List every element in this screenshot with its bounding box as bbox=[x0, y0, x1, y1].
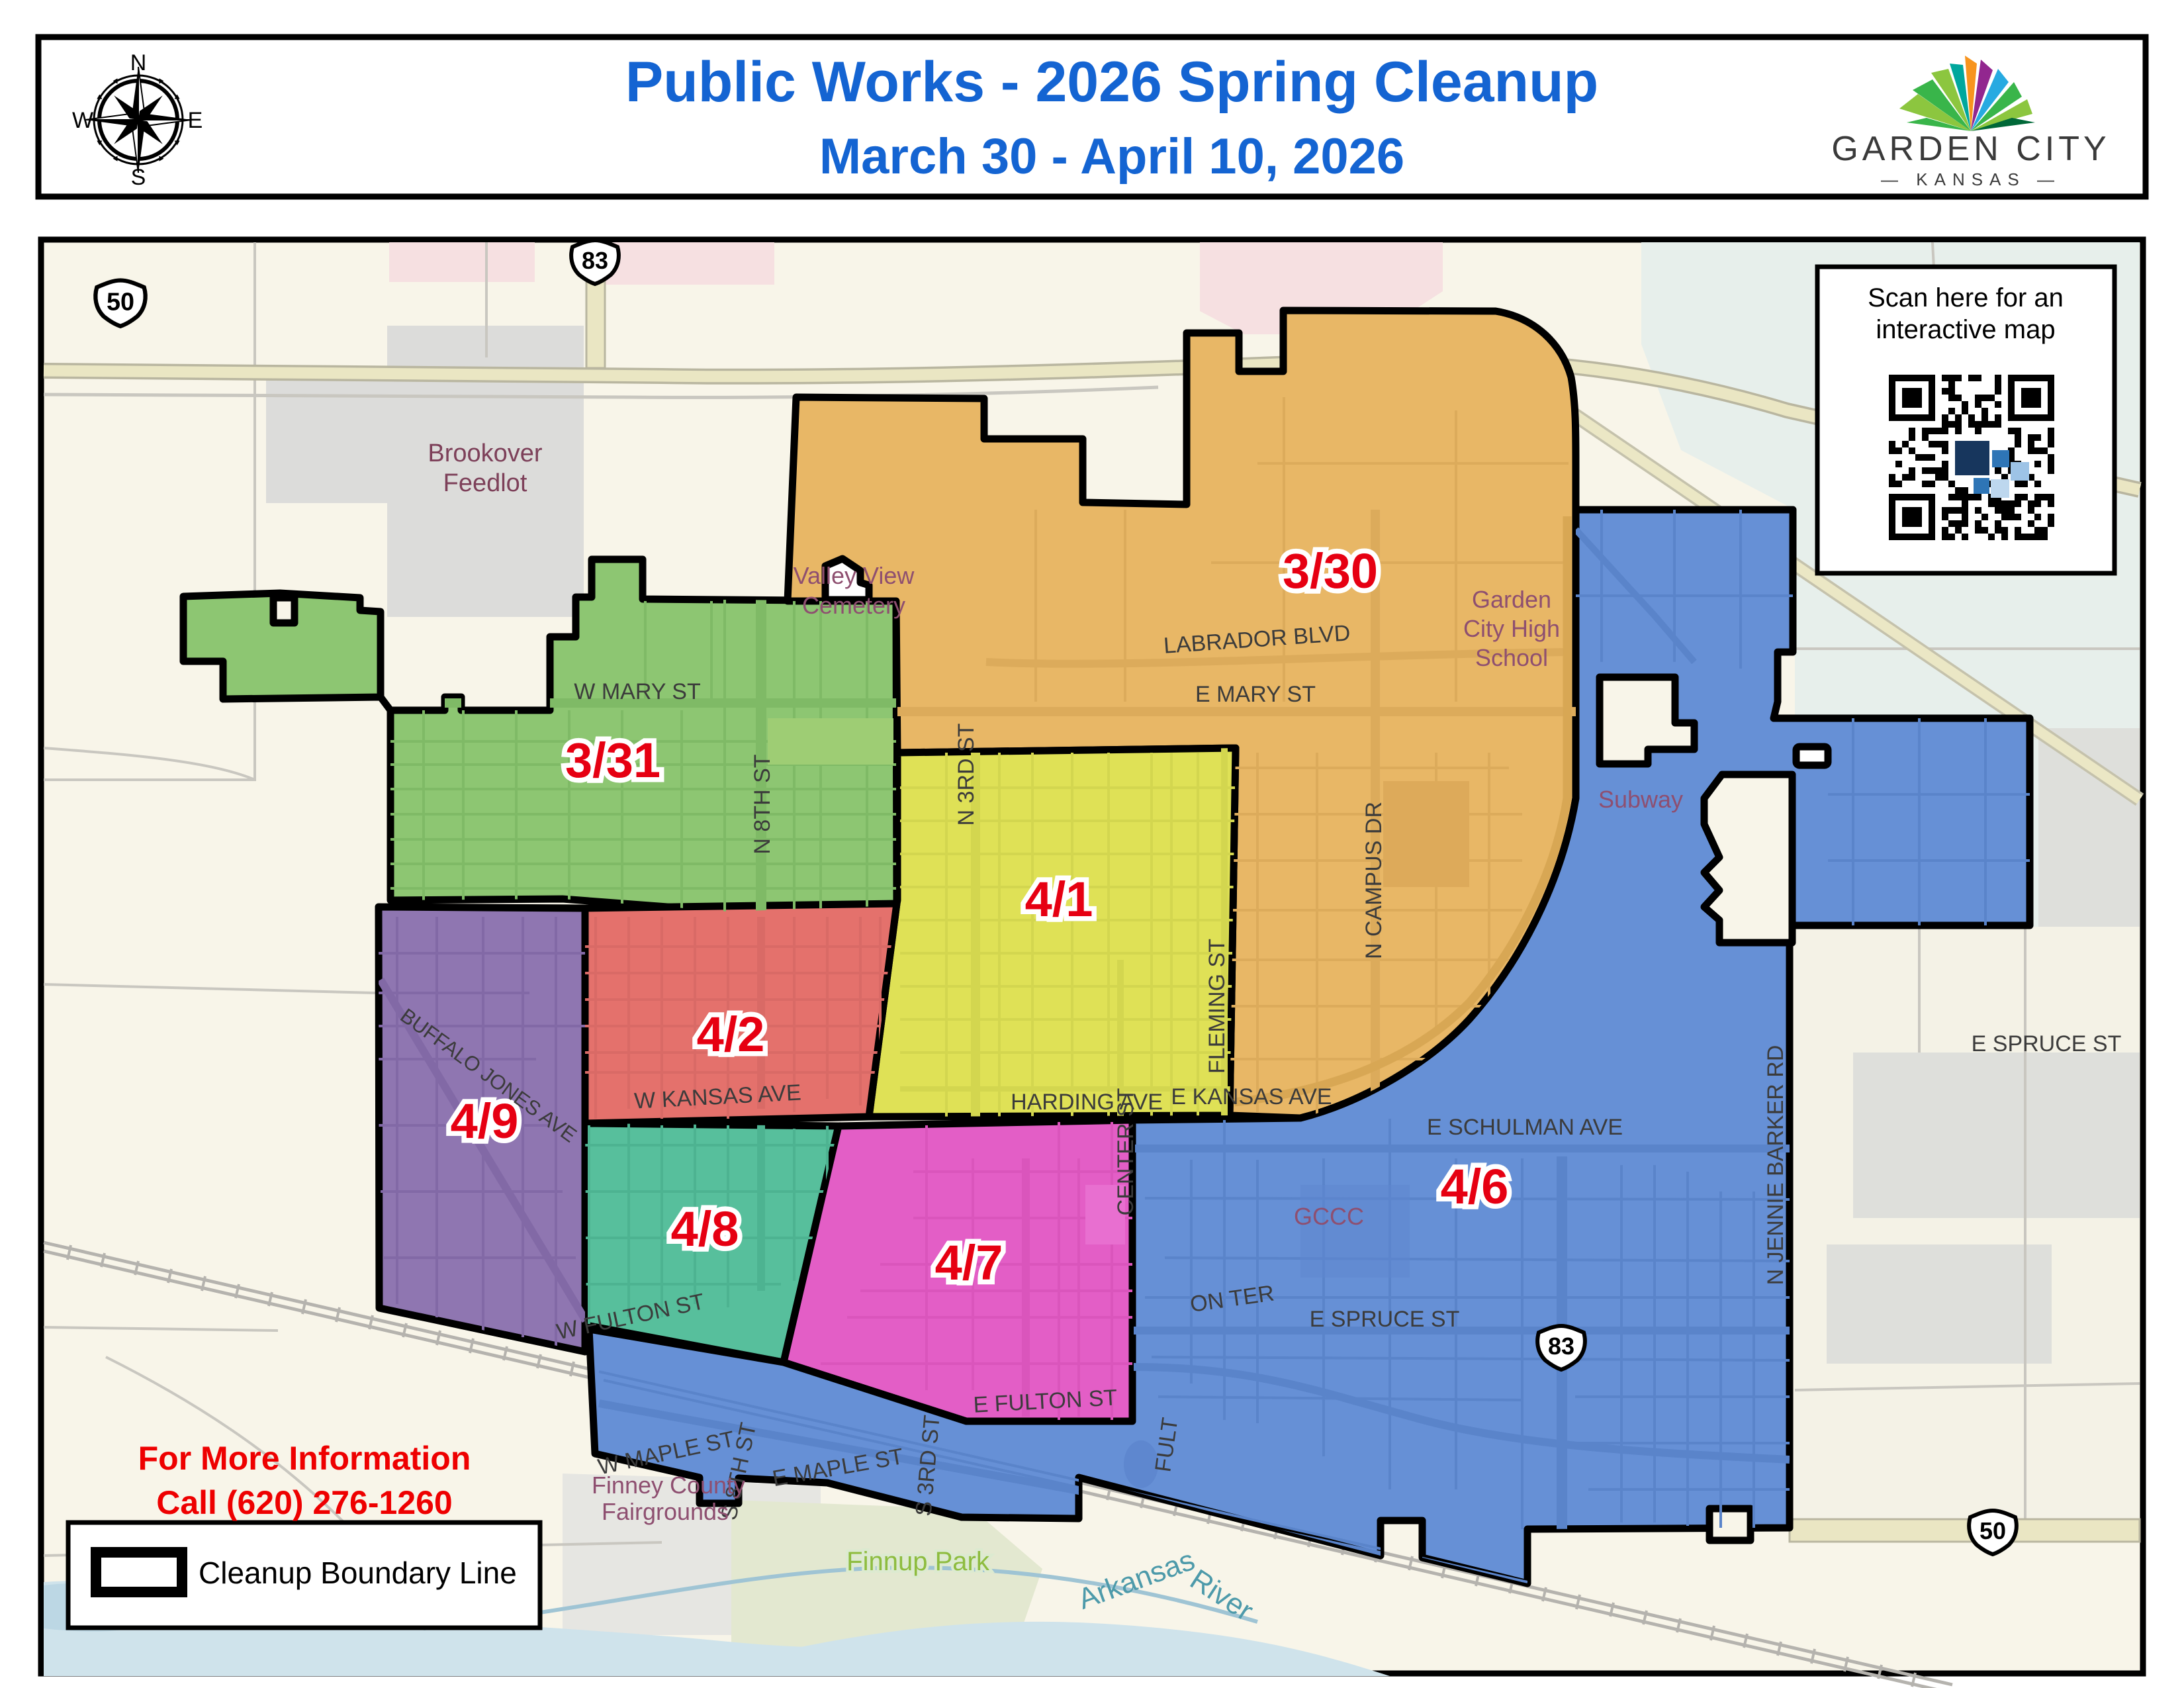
svg-text:4/8: 4/8 bbox=[671, 1201, 739, 1256]
svg-text:— KANSAS —: — KANSAS — bbox=[1881, 169, 2061, 189]
svg-text:83: 83 bbox=[582, 247, 608, 274]
svg-text:4/1: 4/1 bbox=[1025, 872, 1093, 927]
svg-text:E KANSAS AVE: E KANSAS AVE bbox=[1171, 1084, 1332, 1109]
svg-text:HARDING AVE: HARDING AVE bbox=[1011, 1090, 1163, 1115]
svg-text:Scan here for an: Scan here for an bbox=[1868, 283, 2064, 312]
svg-text:Finney County: Finney County bbox=[592, 1472, 745, 1499]
svg-text:Finnup Park: Finnup Park bbox=[846, 1547, 990, 1576]
svg-text:E: E bbox=[188, 108, 203, 133]
svg-text:E MARY ST: E MARY ST bbox=[1195, 682, 1316, 707]
svg-text:Public Works - 2026 Spring Cle: Public Works - 2026 Spring Cleanup bbox=[625, 50, 1598, 114]
svg-text:3/31: 3/31 bbox=[565, 733, 660, 788]
svg-text:W: W bbox=[72, 108, 93, 133]
svg-text:School: School bbox=[1475, 644, 1548, 671]
svg-text:GCCC: GCCC bbox=[1294, 1203, 1364, 1230]
svg-text:FLEMING ST: FLEMING ST bbox=[1205, 939, 1230, 1074]
svg-text:Valley View: Valley View bbox=[794, 562, 915, 589]
svg-text:S: S bbox=[131, 165, 146, 190]
svg-text:N: N bbox=[130, 50, 147, 75]
svg-text:For More Information: For More Information bbox=[138, 1440, 471, 1477]
svg-text:Cleanup Boundary Line: Cleanup Boundary Line bbox=[199, 1556, 517, 1590]
svg-text:Fairgrounds: Fairgrounds bbox=[602, 1498, 729, 1525]
svg-text:50: 50 bbox=[107, 289, 134, 316]
svg-text:N 3RD ST: N 3RD ST bbox=[954, 724, 979, 826]
svg-text:interactive map: interactive map bbox=[1876, 315, 2055, 344]
svg-text:E SPRUCE ST: E SPRUCE ST bbox=[1972, 1031, 2122, 1056]
svg-text:N JENNIE BARKER RD: N JENNIE BARKER RD bbox=[1763, 1045, 1788, 1286]
svg-text:Garden: Garden bbox=[1472, 586, 1551, 613]
svg-text:GARDEN CITY: GARDEN CITY bbox=[1831, 130, 2110, 168]
svg-text:City High: City High bbox=[1463, 615, 1560, 642]
svg-text:Call (620) 276-1260: Call (620) 276-1260 bbox=[156, 1484, 453, 1521]
svg-text:3/30: 3/30 bbox=[1283, 543, 1378, 598]
svg-text:50: 50 bbox=[1979, 1517, 2006, 1544]
svg-text:Cemetery: Cemetery bbox=[802, 592, 905, 619]
svg-text:N CAMPUS DR: N CAMPUS DR bbox=[1361, 802, 1387, 959]
svg-text:Subway: Subway bbox=[1598, 786, 1683, 813]
svg-text:Brookover: Brookover bbox=[428, 440, 543, 467]
svg-text:4/6: 4/6 bbox=[1441, 1159, 1509, 1214]
svg-text:N 8TH ST: N 8TH ST bbox=[750, 754, 775, 854]
svg-text:E SPRUCE ST: E SPRUCE ST bbox=[1310, 1307, 1460, 1332]
svg-text:Feedlot: Feedlot bbox=[443, 469, 527, 497]
svg-text:E SCHULMAN AVE: E SCHULMAN AVE bbox=[1427, 1115, 1623, 1140]
svg-text:83: 83 bbox=[1548, 1333, 1574, 1360]
svg-text:4/7: 4/7 bbox=[935, 1235, 1003, 1290]
svg-text:March 30 - April 10, 2026: March 30 - April 10, 2026 bbox=[819, 128, 1404, 185]
svg-text:4/2: 4/2 bbox=[697, 1007, 765, 1062]
svg-text:W MARY ST: W MARY ST bbox=[574, 679, 700, 704]
